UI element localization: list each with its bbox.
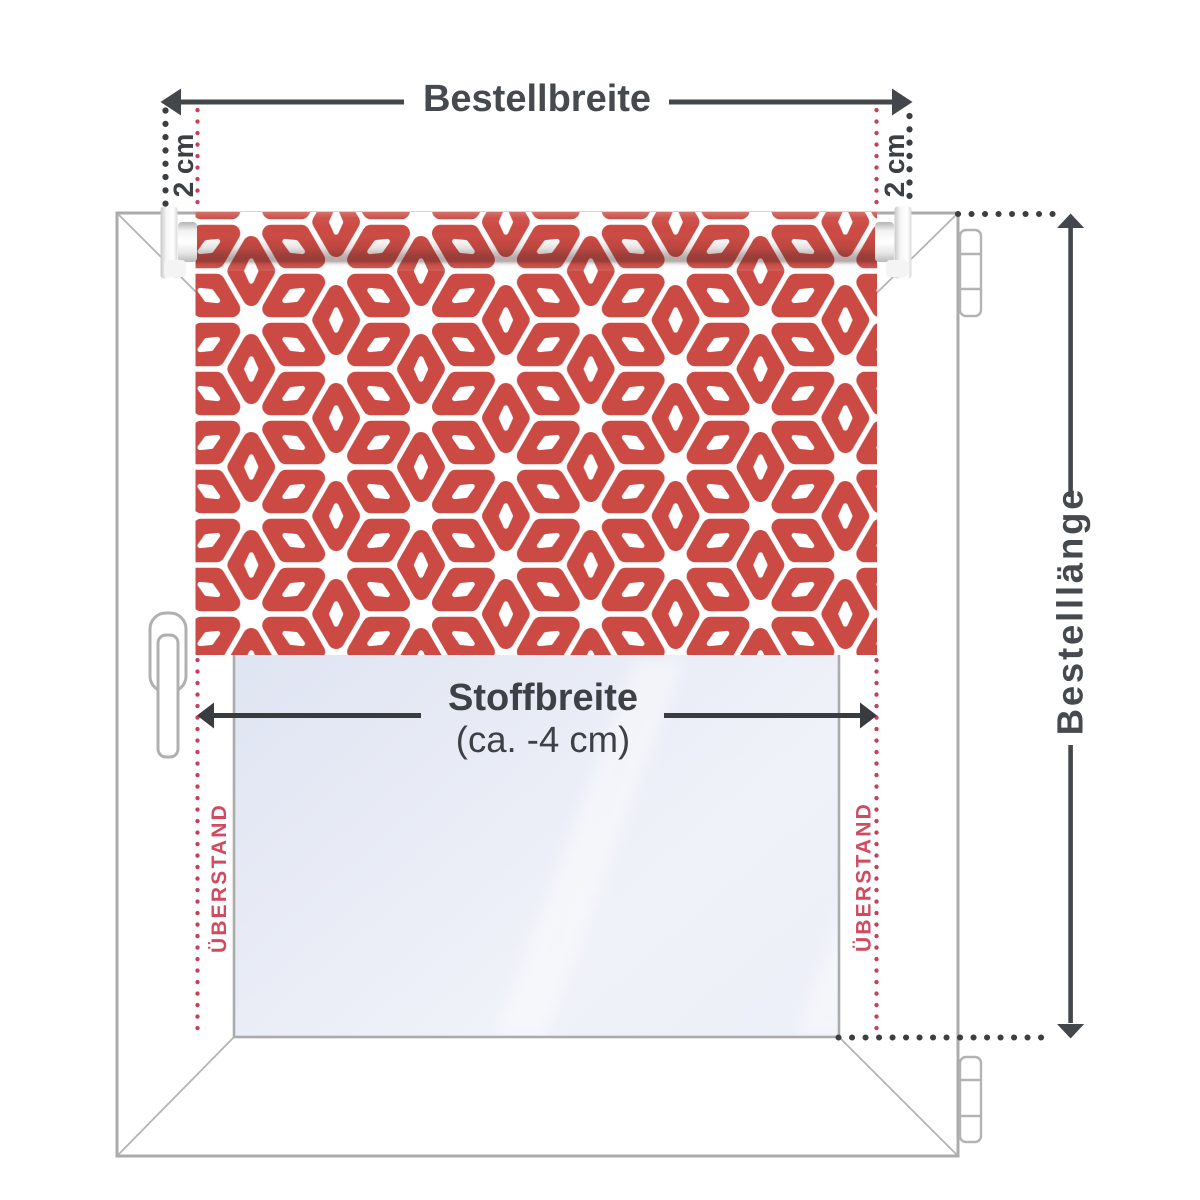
svg-text:ÜBERSTAND: ÜBERSTAND (853, 802, 876, 952)
svg-text:2 cm: 2 cm (879, 134, 910, 198)
svg-text:Bestellbreite: Bestellbreite (423, 78, 651, 120)
svg-text:(ca. -4 cm): (ca. -4 cm) (456, 719, 630, 760)
svg-text:Stoffbreite: Stoffbreite (448, 677, 638, 719)
svg-text:Bestelllänge: Bestelllänge (1050, 487, 1091, 736)
svg-text:ÜBERSTAND: ÜBERSTAND (208, 803, 231, 953)
svg-text:2 cm: 2 cm (168, 134, 199, 198)
